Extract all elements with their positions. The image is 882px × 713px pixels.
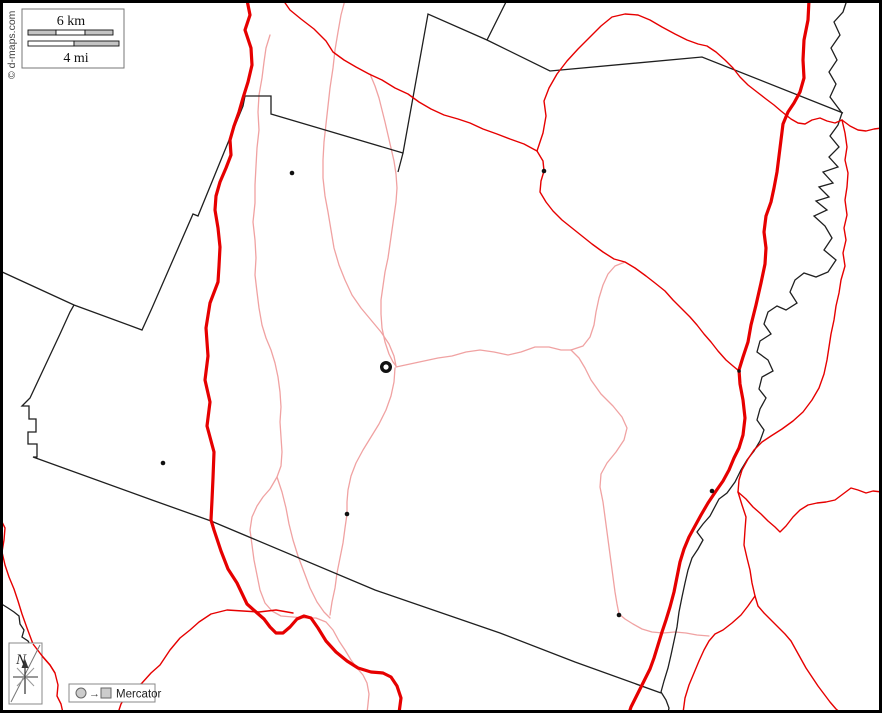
town-dot bbox=[617, 613, 622, 618]
scale-box: 6 km 4 mi bbox=[22, 9, 124, 68]
scale-bar-km-icon bbox=[28, 30, 113, 35]
scale-bar-mi-icon bbox=[28, 41, 119, 46]
town-dot bbox=[710, 489, 715, 494]
main-city-ring-icon bbox=[382, 363, 391, 372]
town-dot bbox=[161, 461, 166, 466]
town-dot bbox=[290, 171, 295, 176]
compass-north-label: N bbox=[15, 652, 27, 668]
scale-mi-label: 4 mi bbox=[63, 51, 88, 66]
town-dot bbox=[345, 512, 350, 517]
map-svg: 6 km 4 mi © d-maps.com → Mercator bbox=[0, 0, 882, 713]
projection-legend: → Mercator bbox=[69, 684, 162, 702]
globe-circle-icon bbox=[76, 688, 86, 698]
map-background bbox=[0, 0, 882, 713]
arrow-icon: → bbox=[89, 688, 100, 700]
town-dot bbox=[542, 169, 547, 174]
scale-km-label: 6 km bbox=[57, 14, 86, 29]
copyright-text: © d-maps.com bbox=[6, 10, 18, 79]
town-dot bbox=[737, 369, 741, 373]
map-canvas: 6 km 4 mi © d-maps.com → Mercator bbox=[0, 0, 882, 713]
projection-square-icon bbox=[101, 688, 111, 698]
projection-label: Mercator bbox=[116, 689, 162, 701]
